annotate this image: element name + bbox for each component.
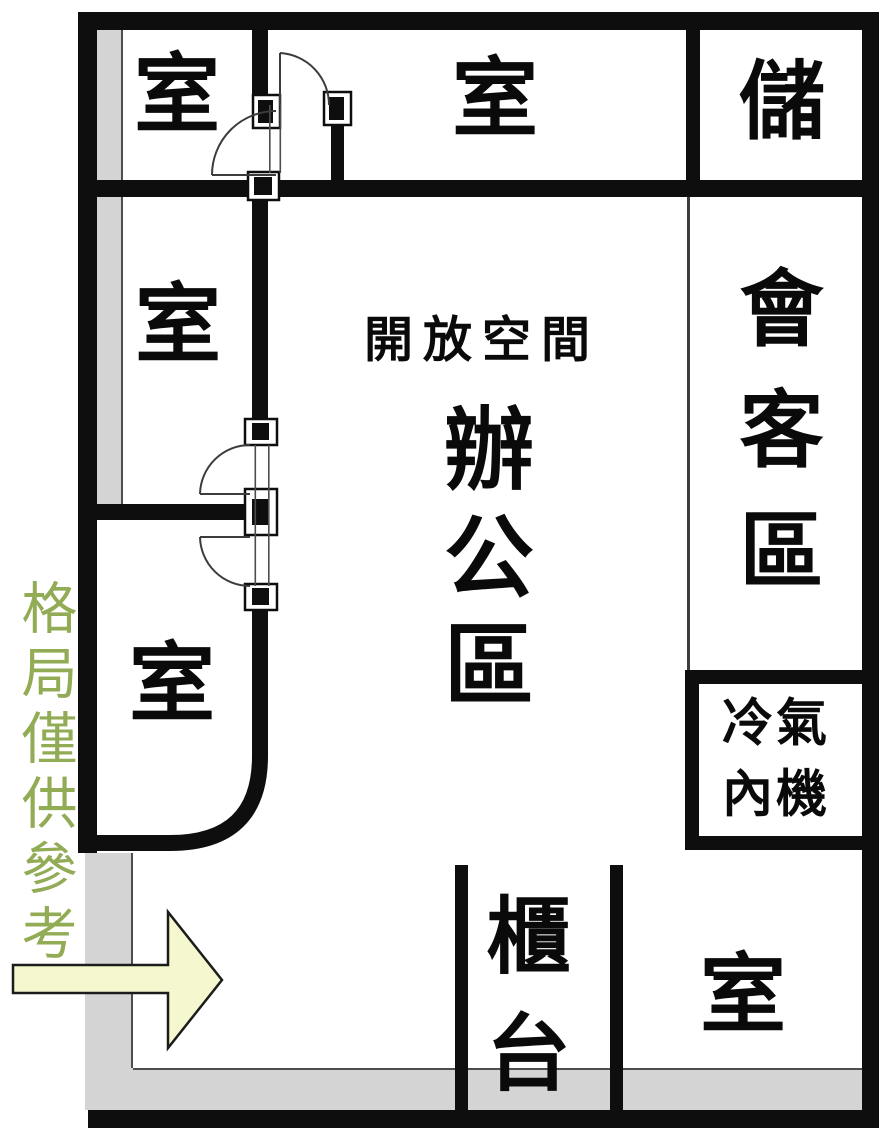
partition-line-meeting-area — [687, 197, 690, 670]
door-swing-arc — [200, 445, 250, 494]
label-room-top-middle: 室 — [452, 56, 538, 142]
door-swing-arc — [280, 53, 329, 105]
label-room-top-left: 室 — [134, 52, 220, 138]
label-open-space-title: 開放空間 — [364, 317, 600, 366]
floor-plan: 室 室 儲 室 開放空間 辦公區 會客區 冷氣內機 室 櫃台 室 格局僅供參考 — [0, 0, 889, 1136]
door-frame-line — [269, 105, 271, 173]
wall-ac-box-left — [685, 670, 699, 850]
label-storage-room: 儲 — [739, 59, 825, 145]
door-frame-line — [280, 105, 282, 173]
wall-counter-left — [455, 865, 468, 1110]
door-swing-arc — [200, 537, 250, 586]
label-room-bottom-right: 室 — [700, 952, 786, 1038]
outer-wall-top — [78, 12, 879, 30]
door-jamb-core — [252, 423, 269, 440]
wall-ac-box-bottom — [685, 836, 862, 850]
gray-strip-left-upper — [97, 30, 123, 508]
gray-strip-edge-line — [121, 30, 123, 508]
label-meeting-area: 會客區 — [733, 265, 817, 628]
label-counter: 櫃台 — [480, 892, 564, 1126]
wall-ac-box-top — [685, 670, 862, 684]
label-ac-indoor-unit: 冷氣內機 — [717, 688, 835, 831]
door-jamb-core — [252, 588, 269, 605]
label-open-space-name: 辦公區 — [435, 402, 525, 726]
door-jamb-core — [329, 97, 344, 120]
door-jamb-core — [254, 177, 272, 195]
wall-counter-right — [610, 865, 623, 1110]
label-room-mid-left: 室 — [135, 282, 221, 368]
label-room-bottom-left: 室 — [129, 641, 215, 727]
wall-mid-left-room-bottom — [97, 504, 247, 520]
outer-wall-right — [862, 12, 879, 1128]
watermark-reference-note: 格局僅供參考 — [17, 579, 73, 969]
wall-mid-column-main — [252, 197, 268, 435]
door-frame-line — [268, 445, 270, 586]
gray-strip-edge-line — [131, 853, 133, 1068]
wall-storage-divider — [686, 30, 700, 180]
door-frame-line — [255, 445, 257, 586]
wall-below-top-rooms — [88, 180, 866, 197]
outer-wall-left — [78, 12, 97, 853]
